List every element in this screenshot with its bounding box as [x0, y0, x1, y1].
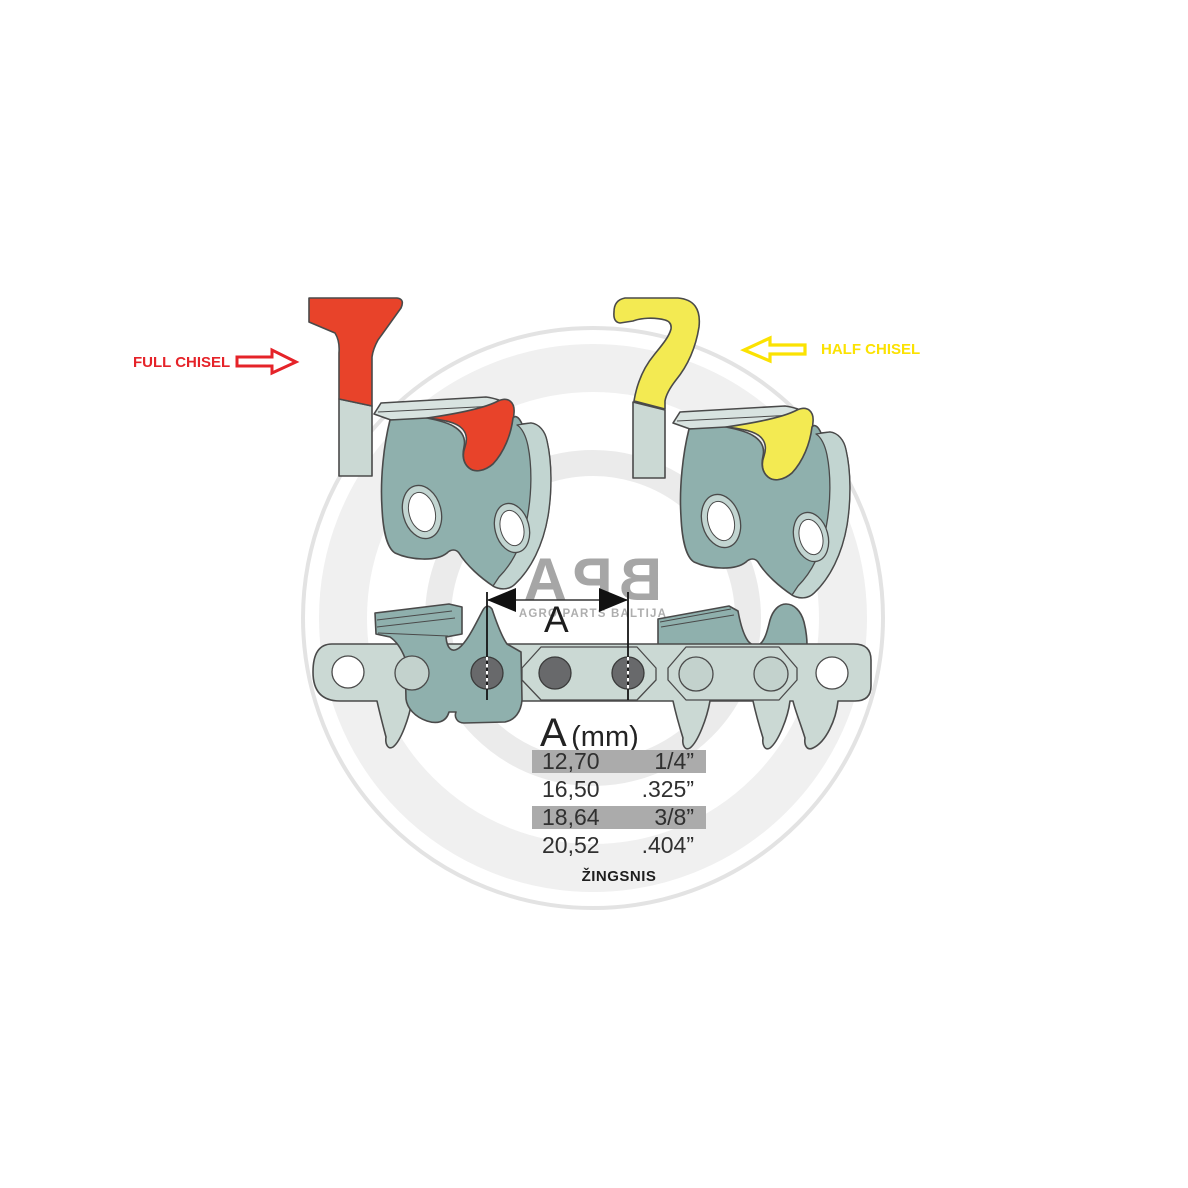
pitch-dimension-label: A: [544, 601, 569, 638]
far-side-cutter-tooth: [658, 604, 807, 645]
pitch-inch-value: 1/4”: [654, 750, 694, 773]
pitch-mm-value: 20,52: [542, 834, 600, 857]
half-chisel-label: HALF CHISEL: [821, 341, 920, 358]
profile-stock: [339, 399, 372, 476]
profile-stock: [633, 402, 665, 478]
link-hole: [754, 657, 788, 691]
pitch-mm-value: 16,50: [542, 778, 600, 801]
profile-red: [309, 298, 402, 406]
link-hole: [816, 657, 848, 689]
dimension-arrowhead-right: [599, 588, 628, 612]
product-diagram-canvas: A P B AGRO PARTS BALTIJA: [0, 0, 1188, 1188]
table-row: 16,50 .325”: [532, 778, 706, 801]
pitch-mm-value: 12,70: [542, 750, 600, 773]
half-chisel-cutter-link-3d: [673, 406, 850, 598]
table-row: 18,64 3/8”: [532, 806, 706, 829]
pitch-table: 12,70 1/4” 16,50 .325” 18,64 3/8” 20,52 …: [532, 750, 706, 862]
full-chisel-label: FULL CHISEL: [133, 354, 230, 371]
pitch-caption: ŽINGSNIS: [532, 868, 706, 885]
rivet: [539, 657, 571, 689]
table-row: 12,70 1/4”: [532, 750, 706, 773]
pitch-inch-value: .325”: [642, 778, 694, 801]
chainsaw-chain-illustration: [0, 0, 1188, 1188]
link-hole: [679, 657, 713, 691]
half-chisel-arrow-icon: [744, 338, 805, 361]
pitch-mm-value: 18,64: [542, 806, 600, 829]
table-row: 20,52 .404”: [532, 834, 706, 857]
pitch-inch-value: 3/8”: [654, 806, 694, 829]
pitch-inch-value: .404”: [642, 834, 694, 857]
full-chisel-arrow-icon: [237, 350, 296, 373]
link-hole: [332, 656, 364, 688]
